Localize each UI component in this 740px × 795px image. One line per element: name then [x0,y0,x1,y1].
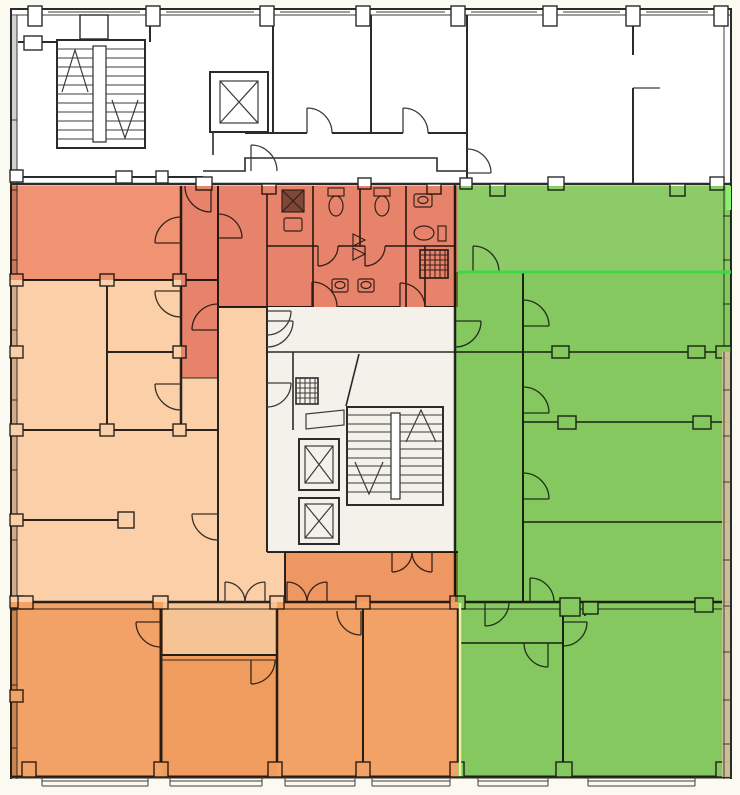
floor-plan-viewport [0,0,740,795]
zone-nw-upper-room[interactable] [10,186,181,280]
core-floor [267,307,455,552]
zone-south-inner-room[interactable] [163,655,277,777]
zone-highlight-sliver [726,186,731,210]
zone-south-wing-west[interactable] [10,602,163,777]
zone-central-mid-room[interactable] [285,552,458,602]
zone-wc-corridor-strip[interactable] [181,307,218,378]
zone-east-wing-upper[interactable] [458,186,731,272]
zone-wc-core[interactable] [181,186,458,307]
east-window-band-tan [722,352,731,777]
zone-east-wing[interactable] [455,272,731,777]
zone-west-wing[interactable] [10,280,285,602]
floor-plan-canvas [0,0,740,795]
zone-south-anteroom[interactable] [163,602,277,655]
zone-south-wing-mid[interactable] [277,602,458,777]
